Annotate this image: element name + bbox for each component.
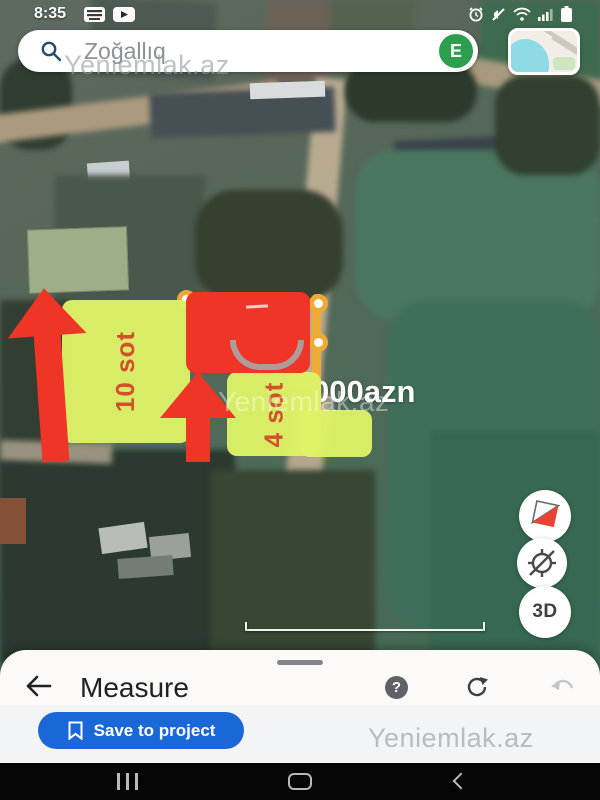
back-arrow-icon[interactable] — [26, 675, 52, 697]
thumb-lake — [508, 39, 549, 75]
map-trees — [210, 470, 375, 662]
nav-back-icon[interactable] — [453, 773, 470, 790]
keyboard-icon — [84, 7, 105, 22]
location-off-icon — [517, 538, 567, 588]
alarm-icon — [468, 6, 484, 22]
undo-icon[interactable] — [550, 677, 576, 697]
map-trees — [495, 75, 600, 175]
measure-bottom-sheet: Measure ? Save to project Yeniemlak.az — [0, 650, 600, 763]
recents-icon[interactable] — [117, 773, 138, 790]
bookmark-icon — [67, 721, 84, 740]
sheet-title: Measure — [80, 672, 189, 704]
3d-button-label: 3D — [532, 601, 557, 623]
measure-vertex-dot[interactable] — [309, 294, 328, 313]
measure-vertex-dot[interactable] — [309, 333, 328, 352]
scale-tick-right — [483, 622, 485, 630]
compass-button[interactable] — [519, 490, 571, 542]
help-button[interactable]: ? — [385, 676, 408, 699]
map-roof-sage — [27, 226, 129, 293]
map-roof — [250, 81, 326, 100]
clock-time: 8:35 — [34, 5, 66, 23]
scale-tick-left — [245, 622, 247, 630]
plot-10-sot-label: 10 sot — [111, 331, 142, 412]
search-icon — [40, 40, 62, 62]
my-location-button[interactable] — [517, 538, 567, 588]
sheet-footer: Save to project Yeniemlak.az — [0, 705, 600, 763]
red-arrow-up-left — [2, 285, 98, 466]
roof-highlight — [246, 304, 268, 308]
roof-arc — [230, 340, 304, 370]
sheet-drag-handle[interactable] — [277, 660, 323, 665]
map-roof-brown — [0, 498, 26, 544]
account-avatar[interactable]: E — [439, 34, 473, 68]
watermark-map: Yeniemlak.az — [218, 386, 390, 418]
save-to-project-button[interactable]: Save to project — [38, 712, 244, 749]
watermark-footer: Yeniemlak.az — [368, 723, 534, 754]
wifi-icon — [513, 7, 531, 21]
map-trees — [195, 190, 343, 302]
compass-icon — [519, 490, 571, 542]
thumb-field — [553, 57, 575, 70]
3d-button[interactable]: 3D — [519, 586, 571, 638]
map-field — [430, 430, 600, 660]
map-structure — [117, 555, 173, 579]
red-building-overlay — [186, 292, 310, 373]
save-to-project-label: Save to project — [94, 721, 216, 741]
measure-screen: 000azn 10 sot 4 sot Yeniemlak.az 8:35 — [0, 0, 600, 800]
status-bar: 8:35 — [0, 0, 600, 28]
signal-icon — [538, 8, 554, 21]
map-field — [355, 150, 600, 320]
scale-line — [245, 629, 485, 631]
map-trees — [0, 450, 235, 662]
youtube-icon — [113, 7, 135, 22]
mute-icon — [491, 7, 506, 22]
refresh-icon[interactable] — [466, 675, 490, 699]
watermark-search: Yeniemlak.az — [64, 50, 230, 81]
help-button-label: ? — [392, 679, 401, 696]
battery-icon — [561, 6, 572, 22]
home-icon[interactable] — [288, 773, 312, 790]
map-layer-thumbnail[interactable] — [508, 28, 580, 75]
android-nav-bar — [0, 763, 600, 800]
